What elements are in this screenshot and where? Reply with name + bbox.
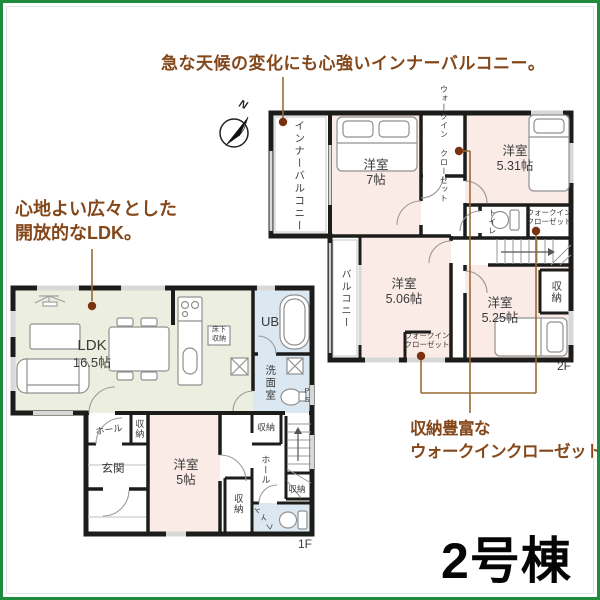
label-floor1: 1F [298, 537, 312, 551]
washer-box-washroom [287, 358, 303, 374]
annotation-ldk: 心地よい広々とした 開放的なLDK。 [15, 197, 177, 245]
toilet-1f-icon [280, 511, 308, 529]
annotation-wic: 収納豊富な ウォークインクローゼット。 [410, 418, 600, 464]
wic-top-line2: クローゼット [440, 149, 449, 203]
label-ldk: LDK 16.5帖 [73, 337, 111, 371]
single-bed-531 [529, 115, 569, 191]
bedroom525-name: 洋室 [482, 296, 519, 311]
floorplan-page: インナーバルコニー バルコニー 洋室 7帖 洋室 5.31帖 洋室 5.06帖 … [0, 0, 600, 600]
floor-storage-line2: 収納 [212, 335, 226, 344]
bedroom7-name: 洋室 [363, 158, 388, 173]
label-bedroom7: 洋室 7帖 [363, 158, 388, 188]
label-bedroom531: 洋室 5.31帖 [497, 144, 534, 174]
annotation-wic-line2: ウォークインクローゼット。 [410, 441, 600, 464]
annotation-ldk-line2: 開放的なLDK。 [15, 221, 177, 245]
label-storage-upper-right: 収納 [257, 423, 275, 434]
dining-table [109, 318, 169, 380]
label-pipe-space: PS [303, 386, 312, 404]
bedroom506-name: 洋室 [386, 277, 423, 292]
annotation-inner-balcony: 急な天候の変化にも心強いインナーバルコニー。 [161, 49, 545, 74]
label-hall-lower: ホール [260, 455, 271, 485]
building-number-label: 2号棟 [441, 536, 572, 586]
label-bedroom506: 洋室 5.06帖 [386, 277, 423, 307]
compass-icon [220, 117, 248, 147]
bedroom5-name: 洋室 [173, 458, 198, 473]
bedroom531-name: 洋室 [497, 144, 534, 159]
washer-box-ldk [231, 358, 248, 375]
label-storage-hall: 収納 [134, 419, 145, 439]
wic-bottom-line2: クローゼット [405, 340, 450, 349]
label-balcony-2f: バルコニー [338, 269, 350, 329]
wic-right-line2: クローゼット [527, 217, 572, 226]
label-wic-right: ウォークイン クローゼット [527, 208, 572, 226]
ldk-size: 16.5帖 [73, 355, 111, 371]
label-floor-storage: 床下 収納 [212, 327, 226, 344]
bedroom525-size: 5.25帖 [482, 311, 519, 326]
wic-bottom-line1: ウォークイン [405, 331, 450, 340]
bedroom531-size: 5.31帖 [497, 159, 534, 174]
label-storage-2f: 収納 [550, 281, 563, 304]
floor-storage-line1: 床下 [212, 327, 226, 336]
label-entrance: 玄関 [102, 463, 125, 477]
annotation-ldk-line1: 心地よい広々とした [15, 197, 177, 221]
bedroom7-size: 7帖 [363, 173, 388, 188]
wic-right-line1: ウォークイン [527, 208, 572, 217]
label-bedroom525: 洋室 5.25帖 [482, 296, 519, 326]
bedroom506-size: 5.06帖 [386, 292, 423, 307]
label-storage-right: 収納 [288, 484, 305, 494]
label-wic-top: ウォークイン クローゼット [439, 85, 450, 203]
label-bath-ub: UB [261, 314, 279, 330]
label-floor2: 2F [557, 359, 571, 373]
label-wic-bottom: ウォークイン クローゼット [405, 331, 450, 349]
label-inner-balcony: インナーバルコニー [293, 120, 306, 233]
ldk-name: LDK [73, 337, 111, 355]
label-toilet-2f: トイレ [487, 209, 497, 236]
kitchen-counter [178, 297, 202, 385]
annotation-wic-line1: 収納豊富な [410, 418, 600, 441]
label-storage-mid: 収納 [231, 494, 242, 515]
wic-top-line1: ウォークイン [440, 85, 449, 139]
label-bedroom5: 洋室 5帖 [173, 458, 198, 488]
bathtub [280, 295, 309, 349]
bedroom5-size: 5帖 [173, 473, 198, 488]
label-washroom: 洗面室 [264, 364, 277, 402]
